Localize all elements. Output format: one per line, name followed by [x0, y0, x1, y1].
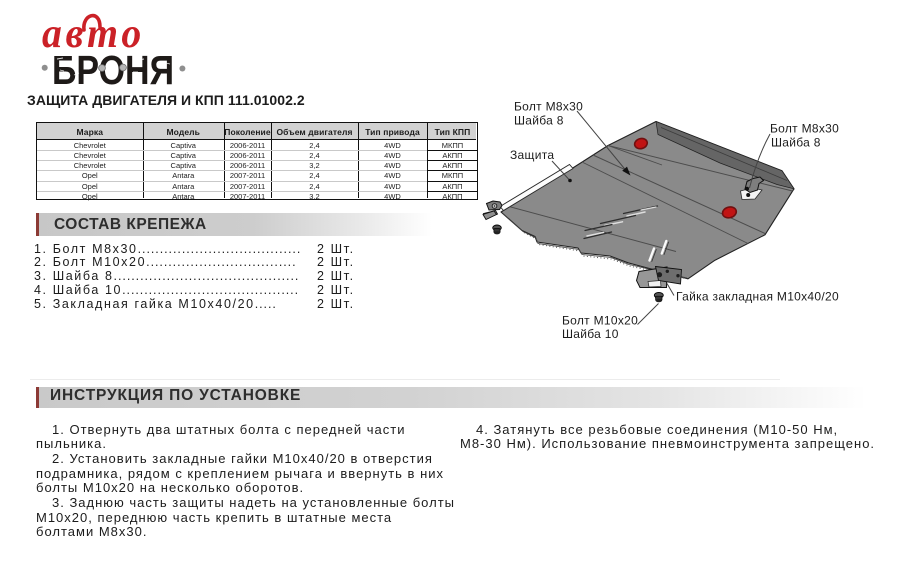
- svg-text:Шайба 8: Шайба 8: [514, 114, 564, 128]
- svg-text:Шайба 10: Шайба 10: [562, 327, 619, 341]
- svg-text:Болт М10х20: Болт М10х20: [562, 314, 638, 328]
- svg-text:Шайба 8: Шайба 8: [771, 136, 821, 150]
- svg-text:Болт М8х30: Болт М8х30: [514, 100, 583, 114]
- svg-text:Защита: Защита: [510, 148, 554, 162]
- svg-text:Болт М8х30: Болт М8х30: [770, 122, 839, 136]
- svg-text:Гайка закладная М10х40/20: Гайка закладная М10х40/20: [676, 290, 839, 304]
- svg-text:БРОНЯ: БРОНЯ: [52, 47, 174, 93]
